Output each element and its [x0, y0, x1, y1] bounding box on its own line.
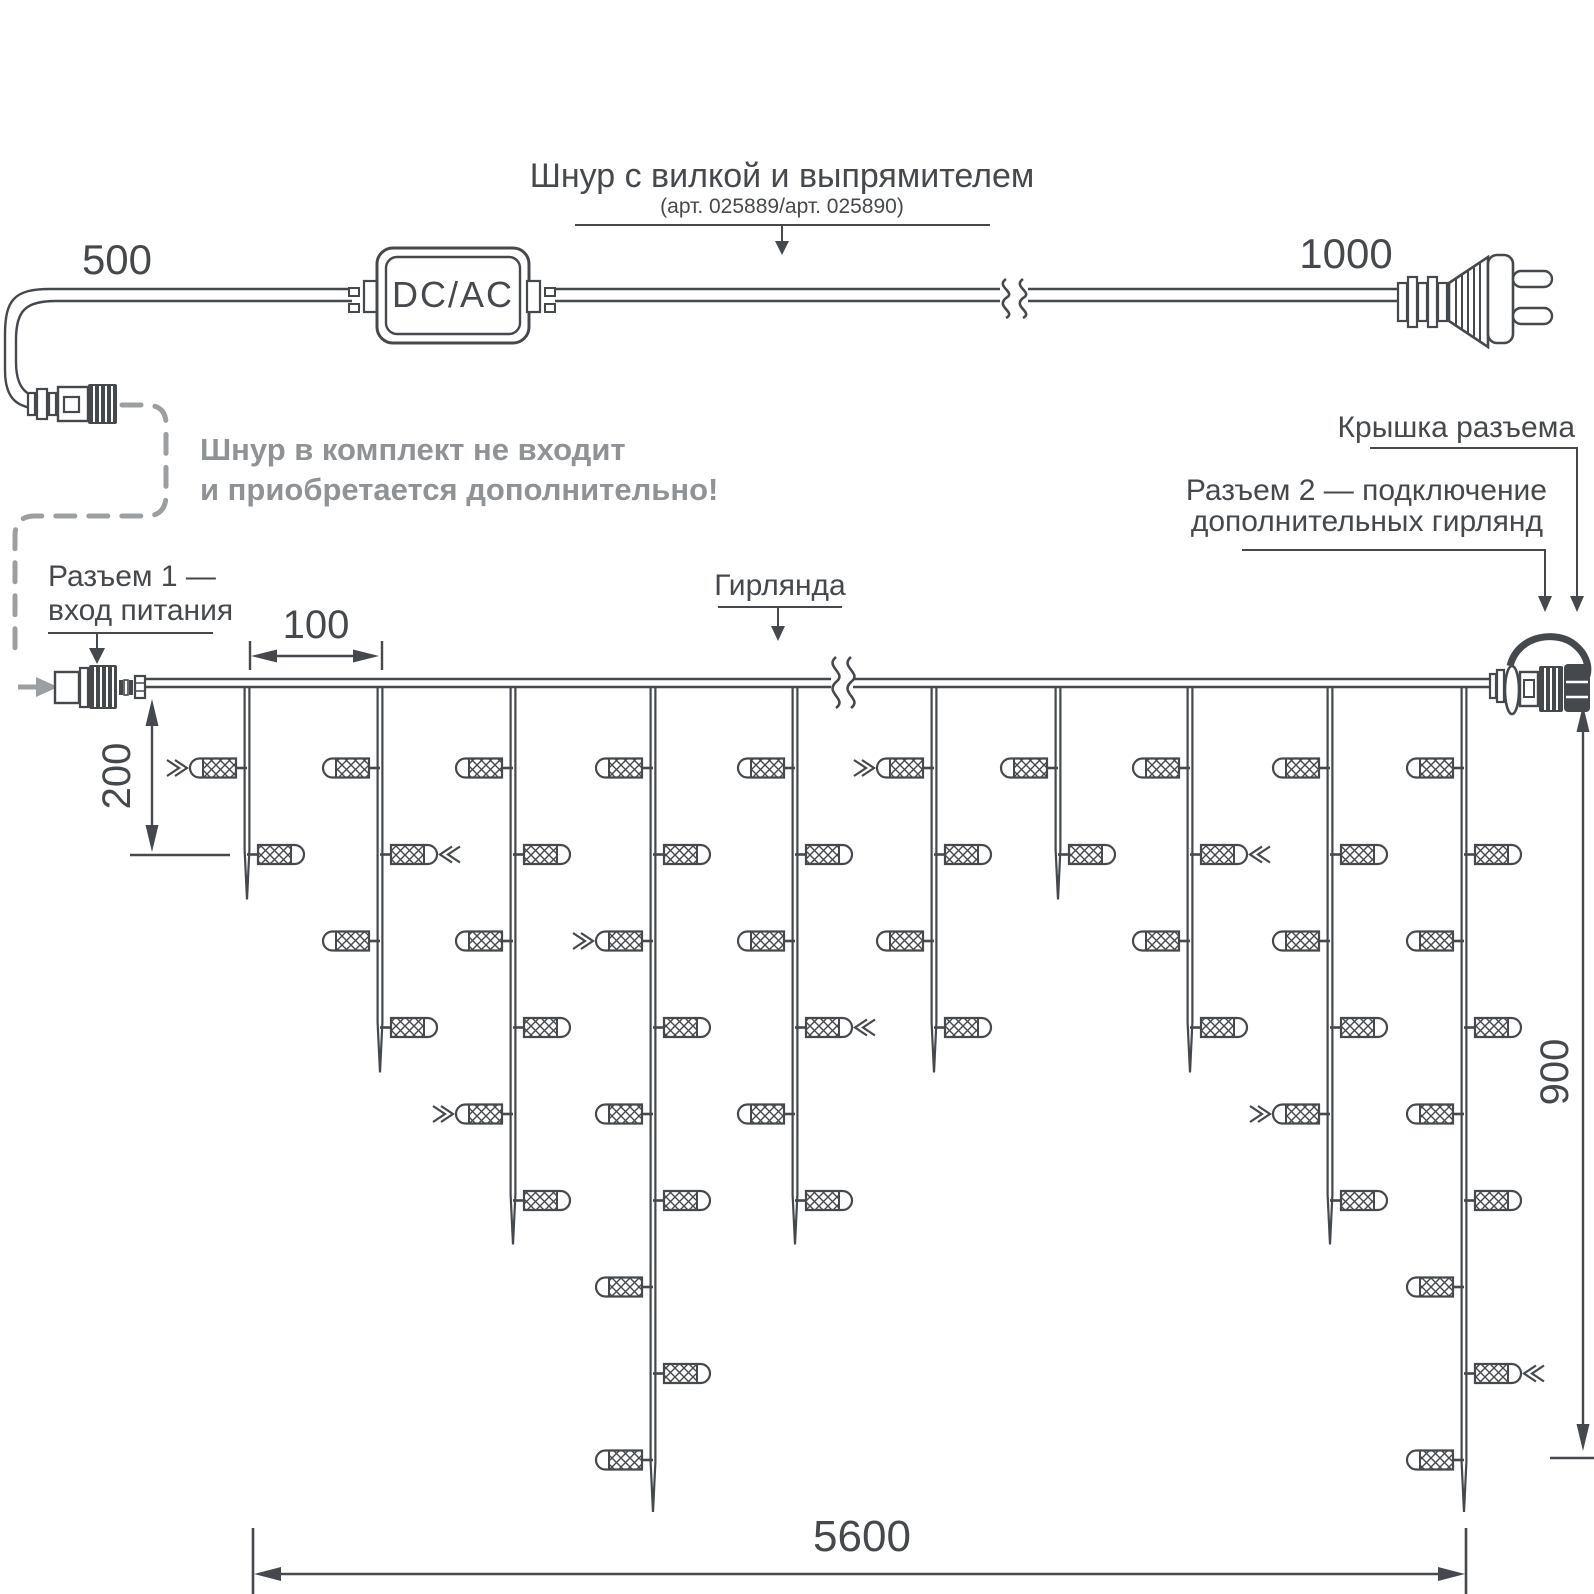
- led-bulb: [513, 1018, 570, 1037]
- connector1-label-line2: вход питания: [48, 594, 233, 627]
- dimension-900: 900: [1533, 705, 1594, 1458]
- power-cord-assembly: DC/AC 500 1000 Шнур с вилкой и выпрямите…: [5, 157, 1552, 424]
- connector-cap-label: Крышка разъема: [1338, 411, 1576, 444]
- led-bulb: [513, 1191, 570, 1210]
- led-bulb: [1190, 845, 1247, 864]
- icicle-drop: [1001, 688, 1115, 900]
- cord-segment-1000: [555, 279, 1400, 318]
- led-bulb: [1133, 932, 1190, 951]
- led-bulb: [456, 932, 513, 951]
- garland-output-connector: [1490, 637, 1590, 714]
- converter-label: DC/AC: [392, 274, 514, 315]
- connector-cap: [1564, 664, 1590, 712]
- garland-label: Гирлянда: [714, 569, 846, 602]
- leader-arrow-down-icon: [1538, 596, 1552, 612]
- led-bulb: [456, 1105, 513, 1124]
- led-bulb: [1464, 1191, 1521, 1210]
- wire-break-mark: [848, 657, 855, 708]
- garland-input-connector: [55, 665, 145, 709]
- icicle-drop: [323, 688, 437, 1073]
- garland: [143, 657, 1544, 1512]
- connector2-label-line1: Разъем 2 — подключение: [1186, 474, 1547, 507]
- led-bulb: [653, 1191, 710, 1210]
- led-bulb: [1001, 759, 1058, 778]
- wire-break-mark: [833, 657, 840, 708]
- led-bulb: [653, 1018, 710, 1037]
- connector2-label-line2: дополнительных гирлянд: [1191, 505, 1543, 538]
- led-bulb: [653, 1364, 710, 1383]
- led-bulb: [596, 1451, 653, 1470]
- icicle-drop: [738, 688, 852, 1245]
- dim-5600-value: 5600: [813, 1512, 911, 1561]
- garland-main-wire: [143, 657, 1492, 708]
- led-bulb: [1407, 1278, 1464, 1297]
- bulb-direction-chevron-icon: [573, 933, 593, 949]
- cord-length-500: 500: [82, 236, 152, 283]
- bulb-direction-chevron-icon: [167, 760, 187, 776]
- dc-ac-converter: DC/AC: [349, 248, 555, 343]
- led-bulb: [380, 845, 437, 864]
- led-bulb: [513, 845, 570, 864]
- plug-pin: [1513, 308, 1552, 324]
- leader-arrow-down-icon: [1570, 596, 1584, 612]
- led-bulb: [596, 1105, 653, 1124]
- bulb-direction-chevron-icon: [433, 1106, 453, 1122]
- led-bulb: [795, 1018, 852, 1037]
- note-line1: Шнур в комплект не входит: [200, 432, 626, 467]
- led-bulb: [934, 845, 991, 864]
- led-bulb: [1407, 1451, 1464, 1470]
- icicle-drop: [596, 688, 710, 1512]
- led-bulb: [877, 932, 934, 951]
- garland-label-block: Гирлянда: [714, 569, 846, 641]
- led-bulb: [1407, 932, 1464, 951]
- note-line2: и приобретается дополнительно!: [200, 472, 718, 507]
- bulb-direction-chevron-icon: [1524, 1366, 1544, 1382]
- plug-pin: [1513, 271, 1552, 287]
- icicle-drop: [456, 688, 570, 1245]
- led-bulb: [934, 1018, 991, 1037]
- icicle-drop: [1273, 688, 1387, 1245]
- led-bulb: [738, 1105, 795, 1124]
- led-bulb: [596, 932, 653, 951]
- cord-article-numbers: (арт. 025889/арт. 025890): [660, 195, 904, 218]
- led-bulb: [1058, 845, 1115, 864]
- dim-100-value: 100: [283, 603, 350, 647]
- leader-arrow-down-icon: [89, 648, 105, 664]
- connector2-label-block: Крышка разъема Разъем 2 — подключение до…: [1186, 411, 1584, 612]
- led-bulb: [247, 845, 304, 864]
- led-bulb: [1273, 932, 1330, 951]
- led-bulb: [738, 932, 795, 951]
- bulb-direction-chevron-icon: [855, 1020, 875, 1036]
- icicle-drop: [190, 688, 304, 900]
- led-bulb: [738, 759, 795, 778]
- led-bulb: [1273, 1105, 1330, 1124]
- cord-break-mark: [1003, 279, 1026, 318]
- dimension-5600: 5600: [253, 1512, 1466, 1594]
- led-bulb: [1464, 1018, 1521, 1037]
- icicle-drop: [1133, 688, 1247, 1073]
- dim-900-value: 900: [1533, 1039, 1577, 1106]
- led-bulb: [1407, 1105, 1464, 1124]
- cord-length-1000: 1000: [1299, 230, 1392, 277]
- led-bulb: [1330, 1018, 1387, 1037]
- led-bulb: [323, 932, 380, 951]
- led-bulb: [1133, 759, 1190, 778]
- led-bulb: [1464, 845, 1521, 864]
- diagram-page: { "colors": { "ink": "#45494d", "muted":…: [0, 0, 1594, 1594]
- led-bulb: [1330, 845, 1387, 864]
- connector1-label-line1: Разъем 1 —: [48, 560, 216, 593]
- led-bulb: [190, 759, 247, 778]
- icicle-drop: [1407, 688, 1521, 1512]
- led-bulb: [653, 845, 710, 864]
- led-bulb: [795, 845, 852, 864]
- connector1-label-block: Разъем 1 — вход питания: [48, 560, 233, 664]
- leader-arrow-down-icon: [775, 241, 789, 255]
- dim-200-value: 200: [95, 743, 139, 810]
- led-bulb: [596, 759, 653, 778]
- icicle-drop: [877, 688, 991, 1073]
- leader-arrow-down-icon: [771, 626, 785, 641]
- led-bulb: [596, 1278, 653, 1297]
- cord-output-connector: [28, 384, 117, 424]
- led-bulb: [1407, 759, 1464, 778]
- led-bulb: [1273, 759, 1330, 778]
- bulb-direction-chevron-icon: [1250, 847, 1270, 863]
- bulb-direction-chevron-icon: [1250, 1106, 1270, 1122]
- led-bulb: [1190, 1018, 1247, 1037]
- led-bulb: [1330, 1191, 1387, 1210]
- cord-title-block: Шнур с вилкой и выпрямителем (арт. 02588…: [530, 157, 1035, 255]
- cord-title: Шнур с вилкой и выпрямителем: [530, 157, 1035, 195]
- diagram-canvas: DC/AC 500 1000 Шнур с вилкой и выпрямите…: [0, 0, 1594, 1594]
- power-plug: [1398, 255, 1552, 347]
- bulb-direction-chevron-icon: [854, 760, 874, 776]
- led-bulb: [877, 759, 934, 778]
- led-bulb: [380, 1018, 437, 1037]
- bulb-direction-chevron-icon: [440, 847, 460, 863]
- dimension-100: 100: [250, 603, 382, 670]
- led-bulb: [795, 1191, 852, 1210]
- led-bulb: [1464, 1364, 1521, 1383]
- led-bulb: [456, 759, 513, 778]
- led-bulb: [323, 759, 380, 778]
